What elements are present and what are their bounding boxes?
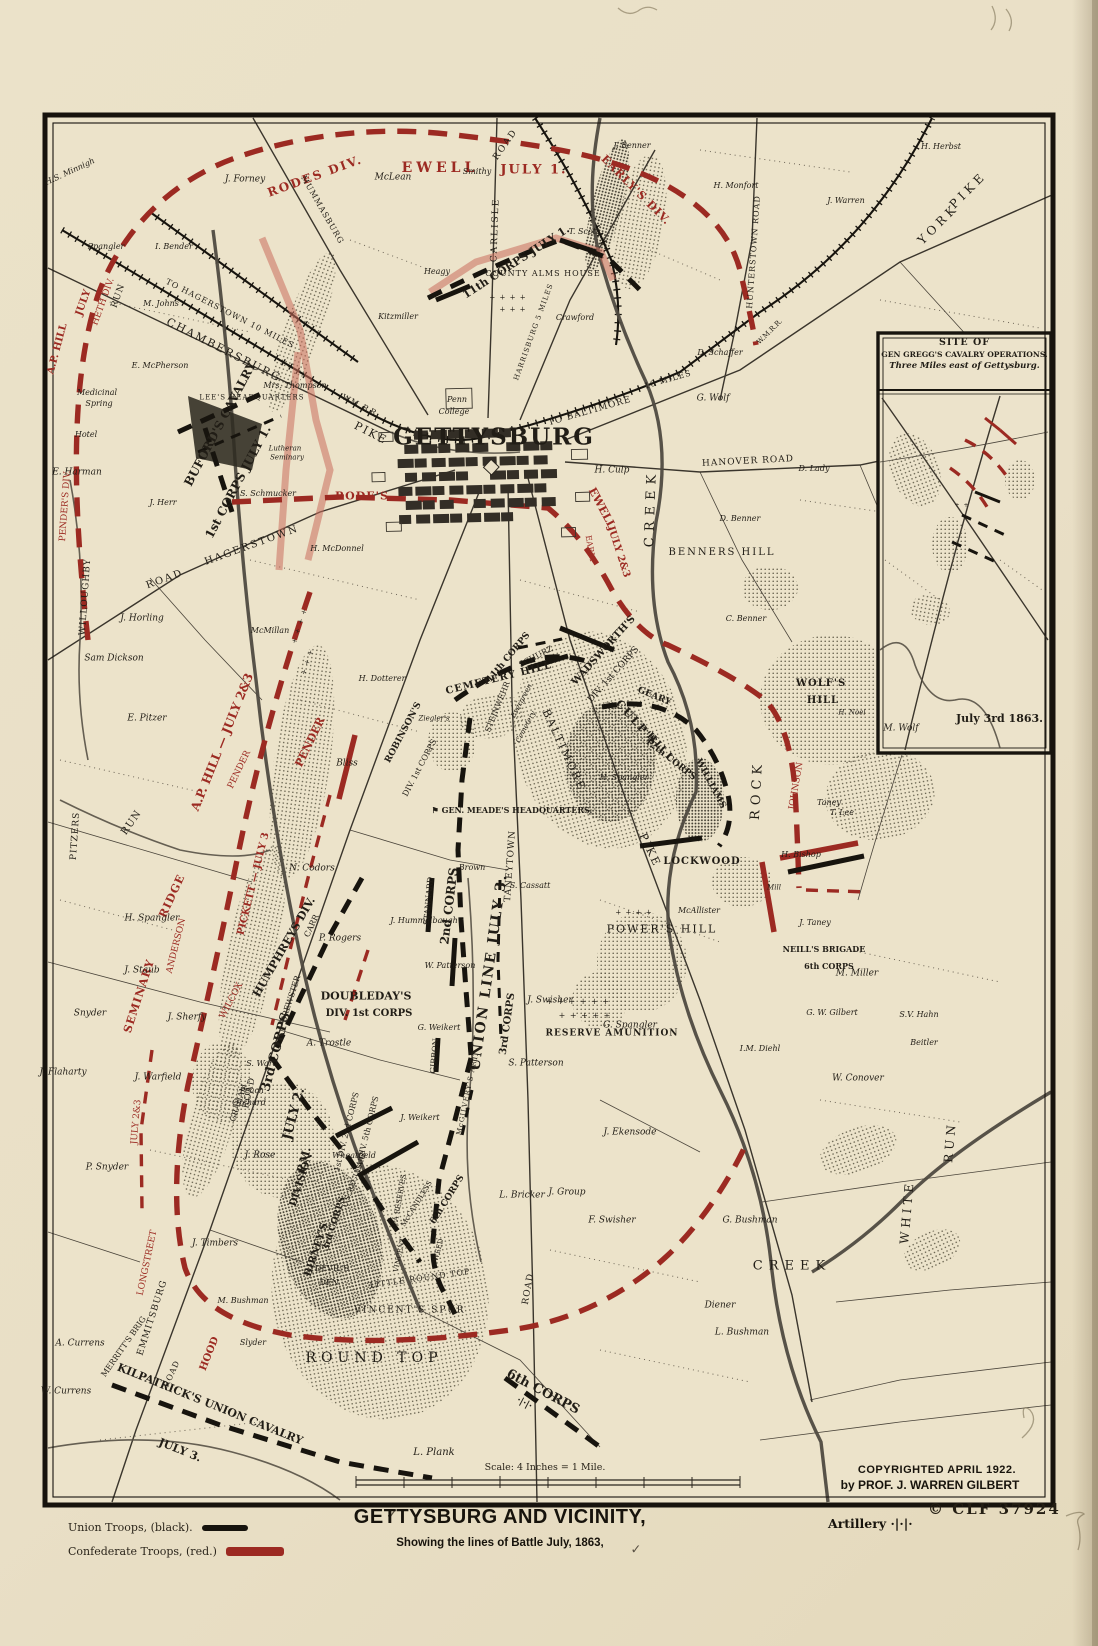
map-label: T. Scott	[569, 228, 599, 236]
map-label: A.P. HILL	[46, 322, 69, 375]
map-label: Mrs. Thompson	[263, 382, 326, 390]
map-label: POWER'S HILL	[607, 924, 718, 935]
map-label: Ziegler's	[419, 716, 450, 723]
map-label: N. Codors	[289, 865, 334, 874]
map-label: Spangler	[88, 243, 125, 251]
map-label: ANDERSON	[166, 918, 188, 975]
map-label: PENDER	[227, 750, 253, 791]
map-label: L. Bricker	[499, 1192, 545, 1201]
catalog-number: © CLF 37924	[928, 1500, 1061, 1518]
map-label: M. Wolf	[883, 725, 918, 734]
map-label: H. Monfort	[713, 182, 758, 190]
map-label: WEED	[433, 1238, 446, 1262]
map-label: J. Staub	[124, 967, 159, 976]
map-label: WILCOX	[219, 982, 245, 1021]
map-label: H. McDonnel	[310, 545, 364, 553]
map-label: E. McPherson	[132, 362, 189, 370]
map-label: A. Trostle	[307, 1040, 351, 1049]
legend-confederate-row: Confederate Troops, (red.)	[68, 1545, 284, 1558]
map-label: DOUBLEDAY'S	[321, 991, 412, 1002]
map-label: CARLISLE	[490, 198, 501, 263]
map-label: J. Herr	[149, 499, 176, 507]
map-label: J. Warren	[827, 197, 865, 205]
map-label: 10 MILES	[643, 369, 692, 390]
map-label: PICKETT — JULY 3	[236, 832, 271, 937]
legend-confederate-label: Confederate Troops, (red.)	[68, 1545, 217, 1558]
map-label: + +	[955, 503, 970, 509]
map-label: P. Snyder	[86, 1164, 128, 1173]
map-label: M. Johns	[143, 300, 179, 308]
map-label: McMillan	[251, 627, 289, 635]
map-label: H. Spangler	[125, 915, 180, 924]
page-title: GETTYSBURG AND VICINITY,	[285, 1506, 715, 1529]
map-label: + + + +	[615, 910, 652, 917]
map-label: VINCENT	[393, 1237, 407, 1273]
map-label: J. Timbers	[192, 1240, 238, 1249]
map-label: DIV. 1st CORPS	[326, 1009, 413, 1019]
map-label: EWELL	[587, 486, 618, 531]
map-label: DEVIL'S	[315, 1265, 349, 1273]
map-label: TANEYTOWN	[504, 830, 518, 902]
map-label: H. Spangler	[600, 774, 649, 782]
map-label: Lutheran	[269, 446, 302, 453]
map-label: ·|·|·	[515, 1396, 533, 1411]
map-label: Beitler	[910, 1039, 938, 1047]
artillery-symbol-note: Artillery ·|·|·	[828, 1516, 958, 1531]
map-label: PITZERS	[70, 812, 82, 861]
map-label: L. Bushman	[715, 1329, 769, 1338]
map-label: PIKE	[637, 831, 662, 868]
map-label: WILLIAMS	[693, 758, 727, 810]
map-label: LEE'S HEADQUARTERS	[199, 395, 304, 402]
map-label: E. Pitzer	[127, 715, 166, 724]
map-label: JULY 2&3	[605, 525, 631, 579]
inset-title-line2: GEN GREGG'S CAVALRY OPERATIONS.	[881, 350, 1048, 359]
map-label: J. Flaharty	[39, 1069, 86, 1078]
map-label: RUN	[942, 1121, 958, 1164]
copyright-line1: COPYRIGHTED APRIL 1922.	[837, 1464, 1037, 1476]
map-label: D. Lady	[799, 465, 830, 473]
map-label: W. Patterson	[425, 962, 476, 970]
map-label: RESERVE AMUNITION	[545, 1030, 678, 1039]
map-label: I.M. Diehl	[740, 1045, 780, 1053]
map-label: 12th CORPS	[643, 737, 697, 782]
map-label: ROBINSON'S	[384, 701, 423, 765]
map-label: MUMMASBURG	[299, 174, 345, 245]
map-label: + + + + +	[559, 1012, 612, 1020]
map-label: J. Group	[548, 1189, 585, 1198]
map-label: J. Taney	[799, 919, 831, 927]
copyright-line2: by PROF. J. WARREN GILBERT	[823, 1478, 1037, 1492]
map-label: E. Harman	[52, 469, 102, 478]
map-label: + + +	[499, 307, 526, 314]
map-label: ⚑ GEN. MEADE'S HEADQUARTERS.	[432, 806, 593, 814]
map-label: L. Plank	[413, 1448, 454, 1458]
map-label: Wheatfield	[332, 1152, 376, 1160]
map-label: JOHNSON	[788, 762, 805, 811]
map-label: Bliss	[336, 760, 358, 769]
map-label: 11th CORPS JULY 1.	[461, 223, 572, 300]
map-label: COUNTY ALMS HOUSE	[485, 270, 600, 278]
map-label: + + + +	[489, 295, 526, 302]
map-label: College	[439, 408, 470, 416]
map-label: S.V. Hahn	[899, 1011, 938, 1019]
map-label: S. Ward	[246, 1060, 278, 1068]
map-label: JULY 1.	[500, 164, 567, 177]
map-label: P. Rogers	[319, 935, 361, 944]
map-label: LOCKWOOD	[663, 857, 740, 867]
map-label: PIKE	[947, 169, 988, 210]
map-label: ROAD	[522, 1273, 536, 1306]
map-label: 6th CORPS	[429, 1174, 466, 1226]
inset-title-line1: SITE OF	[881, 337, 1048, 348]
map-label: W. Currens	[41, 1388, 91, 1397]
map-label: WHITE	[898, 1179, 916, 1244]
map-label: Smithy	[463, 168, 492, 176]
map-label: JULY 3.	[157, 1436, 203, 1463]
map-label: ROUND TOP	[306, 1351, 443, 1365]
map-label: GETTYSBURG	[393, 426, 595, 449]
map-label: BALTIMORE	[540, 707, 587, 792]
map-label: TO HAGERSTOWN 10 MILES	[164, 278, 295, 350]
map-label: Penn	[447, 396, 467, 404]
map-label: GEARY	[636, 686, 672, 708]
map-label: WOLF'S	[796, 679, 846, 689]
map-label: G. W. Gilbert	[806, 1009, 858, 1017]
map-label: H.S. Minnigh	[44, 157, 96, 187]
map-label: G. Bushman	[722, 1217, 777, 1226]
map-label: KILPATRICK'S UNION CAVALRY	[116, 1362, 305, 1447]
map-label: ROCK	[749, 760, 765, 821]
map-page: H.S. MinnighJ. ForneyRODES DIV.EWELLJULY…	[0, 0, 1098, 1646]
map-labels-layer: H.S. MinnighJ. ForneyRODES DIV.EWELLJULY…	[0, 0, 1098, 1646]
map-label: Spring	[85, 400, 112, 408]
map-label: ROAD	[492, 128, 520, 163]
map-label: C. Benner	[726, 615, 766, 623]
map-label: Taney	[817, 799, 841, 807]
legend-confederate-swatch	[226, 1547, 284, 1556]
map-label: Hotel	[75, 431, 97, 439]
map-label: J. Sherfy	[168, 1014, 207, 1023]
map-label: EARLY'S DIV.	[599, 153, 673, 227]
map-label: DIVISION	[289, 1152, 316, 1208]
map-label: ROAD	[145, 569, 185, 592]
map-label: T. Lee	[830, 809, 854, 817]
map-label: DIV. 1st CORPS	[402, 738, 439, 798]
map-label: RODE'S	[335, 491, 389, 502]
map-label: GIBBON	[429, 1038, 440, 1074]
map-label: STEINWEHR	[484, 681, 512, 734]
map-label: WILLOUGHBY	[79, 558, 93, 636]
map-label: McAllister	[678, 907, 720, 915]
map-label: HILL	[807, 696, 839, 706]
map-label: H. Dotterer	[359, 675, 406, 683]
map-label: J. Rose	[245, 1152, 276, 1161]
map-label: H. Herbst	[921, 143, 961, 151]
map-label: 2nd CORPS	[438, 867, 459, 945]
map-label: W.M. R.R.	[340, 393, 379, 418]
map-label: J. Horling	[120, 615, 164, 624]
map-label: J. Forney	[225, 176, 265, 185]
map-label: W. Conover	[832, 1075, 884, 1084]
map-label: G. Spangler	[603, 1022, 657, 1031]
map-label: D. Schaffer	[697, 349, 742, 357]
map-label: Heagy	[424, 268, 450, 276]
map-label: RIDGE	[157, 873, 187, 920]
map-label: H. Culp	[595, 467, 630, 476]
map-label: Brown	[459, 864, 486, 872]
map-label: McLean	[375, 174, 412, 183]
map-label: CREEK	[643, 469, 659, 548]
map-label: F. Swisher	[588, 1217, 635, 1226]
map-label: S. Schmucker	[240, 490, 296, 498]
map-label: Kitzmiller	[378, 313, 418, 321]
page-subtitle: Showing the lines of Battle July, 1863,	[285, 1537, 715, 1549]
map-label: Medicinal	[77, 389, 117, 397]
map-label: D. Benner	[720, 515, 761, 523]
map-label: H. Noel	[838, 710, 865, 717]
map-label: J. Weikert	[400, 1114, 439, 1122]
map-label: M. Miller	[836, 970, 878, 979]
map-label: A.P. HILL — JULY 2&3	[189, 672, 255, 813]
map-label: JULY 2&3	[131, 1099, 144, 1144]
map-label: LONGSTREET	[137, 1230, 160, 1297]
map-label: PIKE	[352, 420, 389, 446]
map-label: DEN	[319, 1279, 338, 1287]
map-label: LITTLE ROUND TOP	[369, 1268, 471, 1290]
map-label: HOOD	[199, 1336, 222, 1373]
map-label: JULY	[75, 289, 94, 318]
page-edge-dark	[1092, 0, 1098, 1646]
map-label: HANOVER ROAD	[702, 455, 794, 469]
map-label: Snyder	[74, 1010, 106, 1019]
inset-title-line3: Three Miles east of Gettysburg.	[881, 361, 1048, 371]
map-label: JULY 2.	[281, 1087, 307, 1142]
map-label: HUMPHREYS DIV.	[251, 895, 317, 998]
inset-title: SITE OF GEN GREGG'S CAVALRY OPERATIONS. …	[881, 337, 1048, 371]
legend-union-label: Union Troops, (black).	[68, 1521, 193, 1534]
map-label: Seminary	[270, 455, 304, 462]
map-label: G. Weikert	[418, 1024, 461, 1032]
map-label: J. Warfield	[135, 1074, 182, 1083]
map-label: M. Bushman	[217, 1297, 268, 1305]
map-label: Diener	[705, 1302, 736, 1311]
map-label: 3rd CORPS	[499, 992, 518, 1055]
map-label: Crawford	[556, 314, 594, 322]
map-label: HUNTERSTOWN ROAD	[746, 195, 762, 309]
map-label: I. Bender	[155, 243, 193, 251]
map-label: VINCENT'S SPUR	[354, 1307, 465, 1316]
scale-caption: Scale: 4 Inches = 1 Mile.	[440, 1462, 650, 1473]
map-label: A. Currens	[55, 1340, 104, 1349]
map-label: Slyder	[240, 1339, 266, 1347]
map-label: 6th CORPS	[504, 1367, 581, 1416]
map-label: CREEK	[753, 1260, 831, 1273]
map-label: H. Bishop	[781, 851, 821, 859]
map-label: 3rd CORPS	[259, 1011, 293, 1093]
map-label: S. Cassatt	[510, 882, 551, 890]
map-label: + + + +	[291, 607, 309, 644]
map-label: + + +	[300, 648, 315, 676]
map-label: PENDER'S DIV.	[59, 470, 73, 542]
map-label: J. Benner	[613, 142, 650, 150]
map-label: BENNERS HILL	[669, 548, 776, 558]
map-label: Mill	[767, 885, 781, 892]
map-label: RUN	[120, 809, 144, 837]
map-label: PENDER	[293, 715, 326, 768]
map-label: J. Ekensode	[604, 1129, 657, 1138]
map-label: NEILL'S BRIGADE	[783, 945, 866, 953]
map-label: J. Swisher	[527, 997, 572, 1006]
map-label: Sam Dickson	[84, 655, 143, 664]
legend-union-row: Union Troops, (black).	[68, 1521, 248, 1534]
map-label: S. Patterson	[508, 1060, 563, 1069]
map-label: W.M.R.R.	[756, 318, 784, 346]
legend-union-swatch	[202, 1525, 248, 1531]
map-label: G. Wolf	[697, 395, 730, 404]
map-label: EARLY	[584, 535, 597, 564]
inset-date-label: July 3rd 1863.	[900, 712, 1043, 725]
